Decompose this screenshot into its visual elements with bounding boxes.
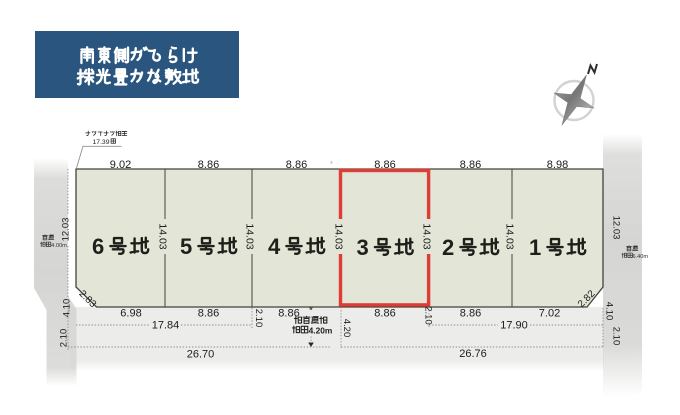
svg-text:8.86: 8.86 [278, 308, 299, 320]
svg-text:8.86: 8.86 [198, 308, 219, 320]
svg-text:4.10: 4.10 [604, 302, 615, 321]
svg-text:2.10: 2.10 [423, 306, 434, 325]
svg-text:17.90: 17.90 [500, 320, 528, 332]
svg-text:*: * [330, 161, 333, 168]
svg-text:8.98: 8.98 [547, 159, 568, 171]
svg-text:4.10: 4.10 [62, 299, 73, 318]
svg-text:17.84: 17.84 [152, 320, 180, 332]
svg-text:2.10: 2.10 [59, 329, 70, 348]
svg-text:4.20: 4.20 [341, 319, 352, 338]
svg-text:12.03: 12.03 [611, 216, 622, 240]
svg-text:14.03: 14.03 [244, 223, 256, 249]
svg-text:14.03: 14.03 [421, 223, 433, 249]
svg-text:4.20m: 4.20m [309, 326, 333, 336]
svg-text:9.02: 9.02 [110, 159, 131, 171]
svg-text:2.10: 2.10 [611, 327, 622, 346]
svg-text:8.86: 8.86 [374, 308, 395, 320]
svg-text:14.03: 14.03 [333, 223, 345, 249]
svg-text:2: 2 [442, 235, 454, 260]
svg-text:26.76: 26.76 [459, 348, 487, 360]
svg-text:14.03: 14.03 [504, 223, 516, 249]
svg-text:5: 5 [180, 234, 192, 259]
svg-text:4: 4 [268, 234, 281, 259]
svg-text:3: 3 [357, 235, 369, 260]
svg-text:14.03: 14.03 [157, 223, 169, 249]
svg-text:1: 1 [529, 235, 541, 260]
svg-text:6.40m: 6.40m [633, 254, 649, 260]
svg-text:26.70: 26.70 [187, 349, 215, 361]
svg-text:2.10: 2.10 [253, 309, 264, 328]
svg-text:6: 6 [92, 234, 104, 259]
svg-text:12.03: 12.03 [61, 218, 72, 242]
svg-text:8.86: 8.86 [286, 159, 307, 171]
svg-text:7.02: 7.02 [539, 308, 560, 320]
svg-text:17.39: 17.39 [92, 139, 109, 146]
svg-text:8.86: 8.86 [460, 308, 481, 320]
svg-text:8.86: 8.86 [374, 159, 395, 171]
svg-text:8.86: 8.86 [198, 159, 219, 171]
svg-text:6.98: 6.98 [120, 308, 141, 320]
svg-text:4.00m: 4.00m [51, 243, 67, 249]
svg-text:8.86: 8.86 [460, 159, 481, 171]
svg-text:*: * [309, 306, 313, 317]
